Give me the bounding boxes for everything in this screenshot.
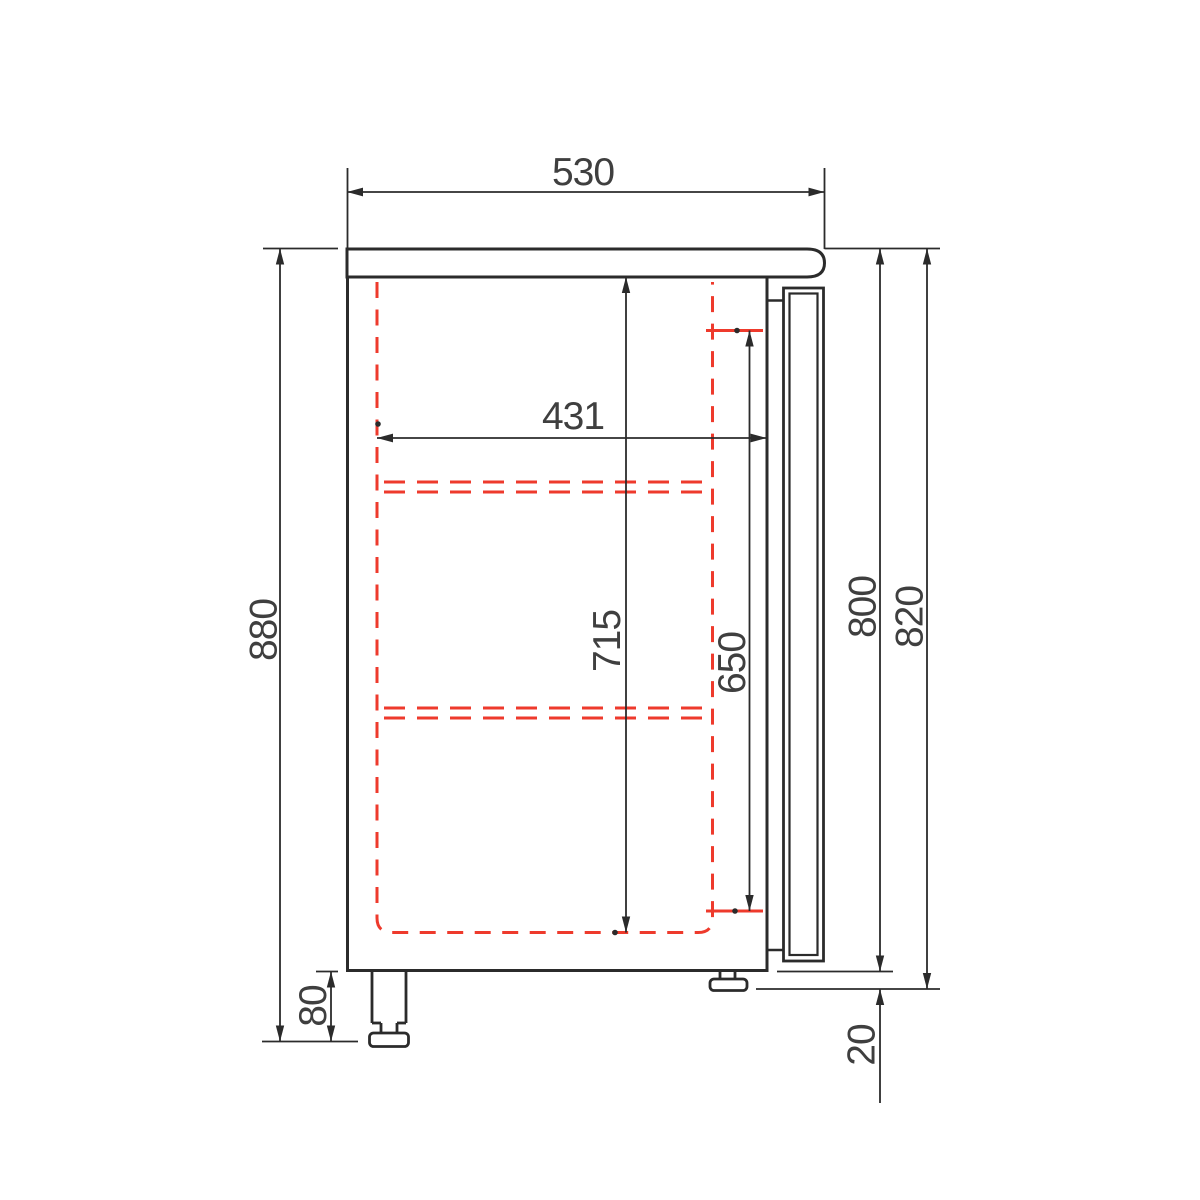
- dim-label-530: 530: [552, 151, 614, 194]
- shelf-dashed-1: [384, 482, 711, 492]
- door-panel-inner: [790, 294, 818, 956]
- shelf-dashed-2: [384, 708, 711, 718]
- hidden-interior: [377, 282, 763, 933]
- dim-label-20: 20: [841, 1024, 884, 1066]
- cabinet-body: [348, 277, 768, 971]
- dimension-80: 80: [292, 972, 335, 1042]
- dimension-820: 820: [889, 249, 932, 990]
- interior-outline: [377, 282, 713, 933]
- dim-label-715: 715: [586, 610, 629, 672]
- dim-label-820: 820: [889, 586, 932, 648]
- technical-drawing-canvas: 530 431 715 650 880: [0, 0, 1200, 1200]
- dimension-800: 800: [842, 249, 885, 972]
- left-leg: [370, 971, 409, 1047]
- dim-label-800: 800: [842, 576, 885, 638]
- dim-label-431: 431: [542, 395, 604, 438]
- dimension-530: 530: [347, 151, 825, 196]
- dim-label-880: 880: [243, 599, 286, 661]
- dimension-650: 650: [711, 331, 754, 912]
- dimensions: 530 431 715 650 880: [243, 151, 932, 1103]
- extension-lines: [262, 168, 940, 1042]
- right-leg: [710, 971, 747, 991]
- dimension-880: 880: [243, 249, 286, 1042]
- dimension-431: 431: [377, 395, 767, 442]
- dimension-20: 20: [841, 989, 885, 1103]
- worktop: [347, 249, 825, 277]
- dim-label-80: 80: [292, 985, 335, 1027]
- dim-label-650: 650: [711, 632, 754, 694]
- cabinet-side-section-drawing: 530 431 715 650 880: [0, 0, 1200, 1200]
- dimension-715: 715: [586, 277, 630, 933]
